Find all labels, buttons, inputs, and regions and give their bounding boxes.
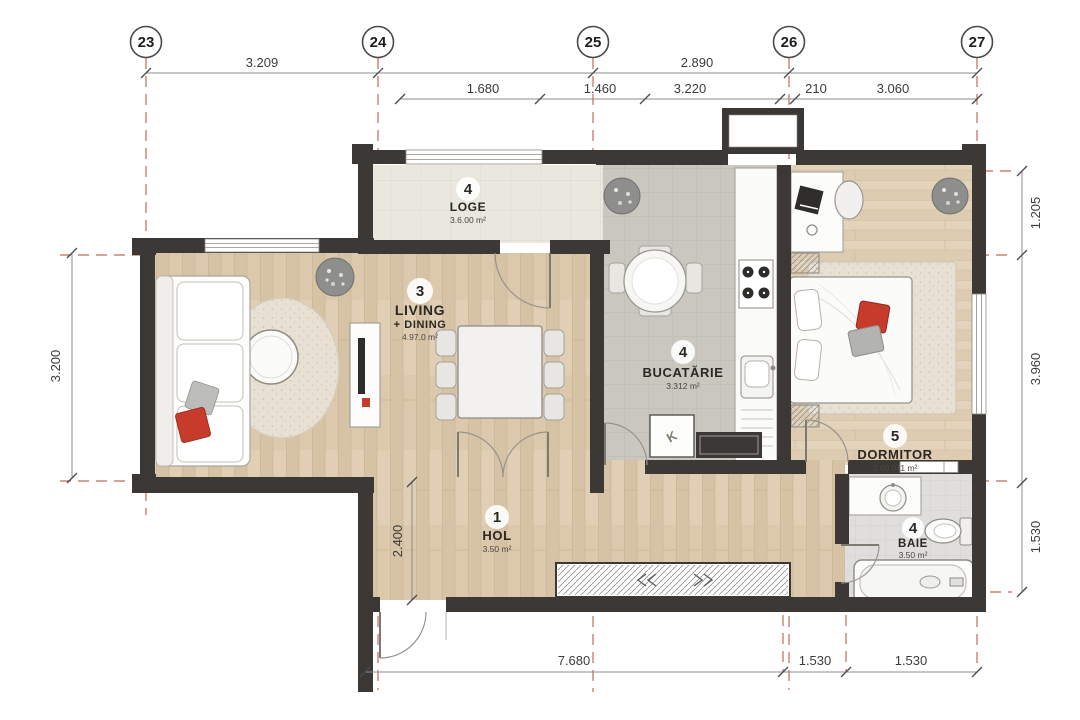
desk-chair bbox=[835, 181, 863, 219]
bed-pillow bbox=[794, 289, 823, 332]
kitchen-counter bbox=[735, 168, 777, 463]
room-number: 4 bbox=[679, 344, 688, 361]
dim-bottom-7680: 7.680 bbox=[558, 653, 591, 668]
nightstand bbox=[791, 253, 819, 273]
room-area: 3.312 m² bbox=[666, 381, 700, 391]
dim-interior-2400: 2.400 bbox=[390, 525, 405, 558]
grid-bubble-23: 23 bbox=[138, 34, 155, 51]
floor-plan-drawing: K bbox=[0, 0, 1080, 720]
grid-bubble-24: 24 bbox=[370, 34, 387, 51]
room-area: 3.00.011 m² bbox=[873, 463, 918, 473]
dim-top2-3060: 3.060 bbox=[877, 81, 910, 96]
room-area: 3.50 m² bbox=[899, 550, 928, 560]
bathtub-drain bbox=[920, 576, 940, 588]
dim-bottom-1530b: 1.530 bbox=[895, 653, 928, 668]
dim-top2-1680: 1.680 bbox=[467, 81, 500, 96]
dim-bottom-1530a: 1.530 bbox=[799, 653, 832, 668]
room-name: LOGE bbox=[450, 200, 486, 214]
dim-top2-3220: 3.220 bbox=[674, 81, 707, 96]
bed-pillow bbox=[794, 339, 822, 381]
room-number: 5 bbox=[891, 428, 899, 445]
room-number: 4 bbox=[464, 181, 473, 198]
bathroom-vanity bbox=[849, 477, 921, 515]
kitchen-sink bbox=[741, 356, 776, 398]
tv-stand-red-item bbox=[362, 398, 370, 407]
loge-floor bbox=[370, 165, 608, 243]
radiator bbox=[556, 563, 790, 597]
dim-top2-1460: 1.460 bbox=[584, 81, 617, 96]
living-window bbox=[205, 239, 319, 252]
room-number: 3 bbox=[416, 283, 424, 300]
room-number: 1 bbox=[493, 509, 501, 526]
kitchen-console bbox=[696, 432, 762, 458]
coffee-table bbox=[244, 330, 298, 384]
bedroom-window bbox=[972, 294, 986, 414]
plant-icon bbox=[604, 178, 640, 214]
dining-table bbox=[458, 326, 542, 418]
plant-icon bbox=[932, 178, 968, 214]
room-label-hol: 1 HOL 3.50 m² bbox=[482, 505, 511, 554]
grid-bubble-27: 27 bbox=[969, 34, 986, 51]
room-name: BUCATĂRIE bbox=[643, 365, 724, 380]
stove bbox=[739, 260, 773, 308]
room-name: DORMITOR bbox=[857, 447, 932, 462]
room-number: 4 bbox=[909, 520, 918, 537]
room-name: BAIE bbox=[898, 538, 928, 550]
dim-top-2890: 2.890 bbox=[681, 55, 714, 70]
dim-top2-210: 210 bbox=[805, 81, 827, 96]
dim-right-1205: 1.205 bbox=[1028, 197, 1043, 230]
room-name-2: + DINING bbox=[394, 319, 447, 331]
tv-stand bbox=[350, 323, 380, 427]
kitchen-cabinet-k: K bbox=[650, 415, 694, 457]
grid-bubble-26: 26 bbox=[781, 34, 798, 51]
toilet bbox=[925, 518, 972, 545]
dim-right-3960: 3.960 bbox=[1028, 353, 1043, 386]
bed bbox=[790, 277, 912, 403]
chimney-shaft bbox=[729, 115, 797, 147]
bathtub-faucet bbox=[950, 578, 963, 586]
floor-plan-canvas: K bbox=[0, 0, 1080, 720]
grid-bubble-25: 25 bbox=[585, 34, 602, 51]
room-area: 3.50 m² bbox=[483, 544, 512, 554]
dim-left-3200: 3.200 bbox=[48, 350, 63, 383]
sofa bbox=[156, 276, 250, 466]
plant-icon bbox=[316, 258, 354, 296]
dining-table-set bbox=[436, 326, 564, 420]
tv bbox=[358, 338, 365, 394]
room-name: LIVING bbox=[395, 302, 445, 318]
dim-right-1530: 1.530 bbox=[1028, 521, 1043, 554]
room-area: 3.6.00 m² bbox=[450, 215, 486, 225]
dim-top-3209: 3.209 bbox=[246, 55, 279, 70]
grid-bubbles: 23 24 25 26 27 bbox=[131, 27, 993, 58]
entrance-door-swing bbox=[380, 612, 446, 658]
room-area: 4.97.0 m² bbox=[402, 332, 438, 342]
loge-window bbox=[406, 150, 542, 164]
room-name: HOL bbox=[482, 528, 511, 543]
